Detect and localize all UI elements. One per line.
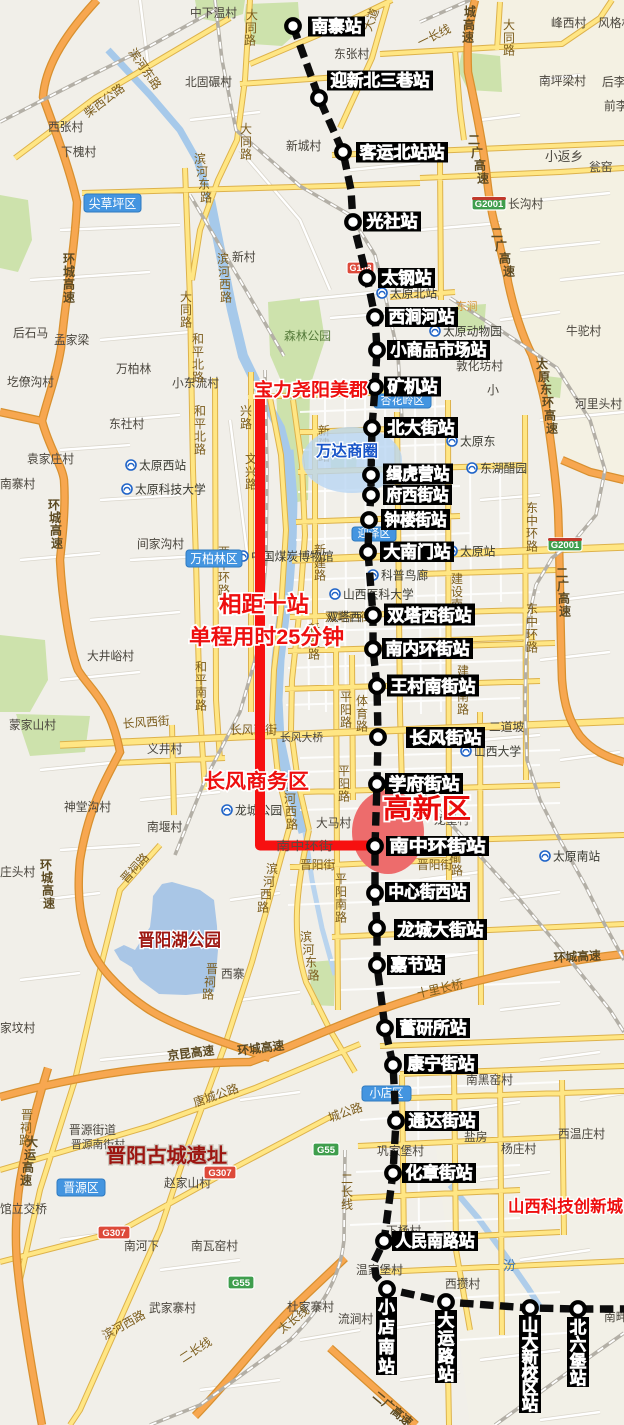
svg-text:杨庄村: 杨庄村 [501, 1141, 536, 1156]
svg-text:太钢站: 太钢站 [382, 268, 433, 288]
svg-text:环: 环 [526, 527, 538, 541]
svg-text:东社村: 东社村 [109, 416, 144, 431]
svg-text:路: 路 [220, 290, 232, 305]
svg-text:前李村: 前李村 [604, 98, 624, 113]
svg-text:小: 小 [487, 383, 499, 397]
svg-text:神堂沟村: 神堂沟村 [64, 800, 111, 814]
svg-text:站: 站 [522, 1394, 539, 1414]
svg-text:康宁街站: 康宁街站 [408, 1054, 476, 1074]
svg-text:运: 运 [438, 1329, 455, 1348]
svg-text:阳: 阳 [340, 703, 352, 717]
svg-text:河: 河 [263, 875, 275, 889]
svg-text:小商品市场站: 小商品市场站 [391, 340, 487, 360]
svg-text:南堰村: 南堰村 [147, 819, 182, 834]
svg-text:路: 路 [308, 968, 320, 983]
svg-text:圪僚沟村: 圪僚沟村 [7, 374, 54, 389]
svg-text:速: 速 [477, 171, 489, 186]
svg-text:太原南站: 太原南站 [553, 849, 600, 864]
svg-text:G307: G307 [102, 1228, 125, 1239]
svg-text:和: 和 [194, 404, 206, 418]
svg-text:中下温村: 中下温村 [190, 5, 237, 20]
svg-text:晋阳街: 晋阳街 [300, 858, 335, 872]
svg-text:西涧河站: 西涧河站 [389, 307, 456, 327]
svg-text:长风大桥: 长风大桥 [280, 730, 323, 744]
svg-text:嘉节站: 嘉节站 [391, 955, 443, 975]
svg-text:武家寨村: 武家寨村 [149, 1300, 196, 1315]
svg-text:同: 同 [180, 303, 192, 317]
svg-text:北: 北 [570, 1318, 587, 1337]
svg-text:高: 高 [463, 17, 475, 32]
svg-text:路: 路 [195, 698, 207, 713]
svg-text:南中环街站: 南中环街站 [390, 836, 487, 856]
svg-text:后石马: 后石马 [13, 326, 48, 340]
svg-text:城: 城 [49, 510, 61, 525]
svg-text:南: 南 [378, 1336, 395, 1356]
svg-text:蓄研所站: 蓄研所站 [400, 1018, 468, 1038]
svg-text:东: 东 [305, 956, 317, 970]
svg-text:堡: 堡 [570, 1351, 587, 1371]
svg-text:高: 高 [558, 591, 570, 606]
svg-text:G2001: G2001 [551, 540, 580, 551]
svg-text:速: 速 [51, 536, 63, 551]
svg-text:路: 路 [338, 789, 350, 804]
svg-text:家坟村: 家坟村 [0, 1020, 35, 1035]
svg-text:大: 大 [246, 8, 258, 22]
svg-text:河里头村: 河里头村 [575, 397, 622, 411]
svg-text:路: 路 [340, 715, 352, 730]
svg-text:路: 路 [244, 33, 256, 48]
svg-text:大: 大 [26, 1134, 38, 1149]
svg-text:大: 大 [240, 122, 252, 136]
svg-text:G55: G55 [317, 1145, 336, 1156]
svg-text:速: 速 [503, 264, 515, 279]
svg-text:阳: 阳 [335, 885, 347, 899]
svg-text:晋阳街: 晋阳街 [417, 858, 452, 872]
svg-text:光社站: 光社站 [365, 211, 418, 231]
svg-text:站: 站 [438, 1364, 455, 1384]
svg-text:速: 速 [20, 1173, 32, 1188]
svg-text:东: 东 [540, 382, 552, 397]
svg-text:南寨站: 南寨站 [312, 16, 363, 36]
svg-text:晋阳湖公园: 晋阳湖公园 [138, 930, 221, 950]
svg-text:滨: 滨 [194, 151, 206, 166]
svg-text:路: 路 [257, 900, 269, 915]
svg-text:后李村: 后李村 [602, 74, 624, 89]
svg-text:运: 运 [24, 1148, 36, 1162]
svg-text:单程用时25分钟: 单程用时25分钟 [189, 625, 344, 649]
svg-text:高新区: 高新区 [383, 793, 471, 824]
svg-text:路: 路 [526, 640, 538, 655]
svg-text:环: 环 [63, 252, 75, 266]
svg-text:山西科技创新城: 山西科技创新城 [508, 1196, 623, 1216]
svg-text:尖草坪区: 尖草坪区 [89, 197, 137, 211]
svg-text:孟家梁: 孟家梁 [54, 332, 89, 347]
svg-text:森林公园: 森林公园 [284, 328, 331, 343]
svg-text:学府街站: 学府街站 [389, 774, 461, 794]
svg-text:高: 高 [63, 277, 75, 292]
svg-text:宝力尧阳美郡: 宝力尧阳美郡 [254, 379, 368, 400]
svg-text:速: 速 [546, 421, 558, 436]
svg-text:路: 路 [194, 442, 206, 457]
svg-text:平: 平 [338, 764, 350, 778]
svg-text:晋阳古城遗址: 晋阳古城遗址 [106, 1144, 228, 1167]
svg-text:城: 城 [41, 870, 53, 885]
svg-text:路: 路 [457, 702, 469, 717]
svg-text:西寨: 西寨 [221, 966, 245, 981]
svg-text:中: 中 [526, 513, 538, 528]
svg-text:大: 大 [503, 18, 515, 32]
svg-text:风格村: 风格村 [598, 15, 624, 30]
svg-text:G55: G55 [232, 1278, 251, 1289]
svg-text:人民南路站: 人民南路站 [396, 1231, 475, 1251]
svg-text:河: 河 [284, 792, 296, 806]
svg-text:大: 大 [180, 290, 192, 304]
svg-text:平: 平 [194, 417, 206, 431]
svg-text:祠: 祠 [20, 1121, 32, 1135]
svg-text:和: 和 [195, 660, 207, 674]
svg-text:广: 广 [471, 145, 483, 160]
svg-text:高: 高 [544, 408, 556, 423]
svg-text:滨: 滨 [266, 861, 278, 876]
svg-text:速: 速 [559, 604, 571, 619]
svg-text:万柏林区: 万柏林区 [190, 551, 238, 566]
svg-text:高: 高 [474, 158, 486, 173]
svg-text:二: 二 [491, 226, 503, 240]
svg-text:南寨村: 南寨村 [0, 476, 35, 491]
svg-text:太: 太 [536, 356, 549, 371]
svg-text:西攒村: 西攒村 [445, 1277, 480, 1291]
svg-text:大井峪村: 大井峪村 [87, 649, 134, 663]
svg-text:小: 小 [378, 1298, 395, 1317]
svg-text:西张村: 西张村 [48, 120, 83, 134]
svg-text:路: 路 [314, 568, 326, 583]
svg-text:路: 路 [438, 1346, 455, 1366]
svg-text:巩家堡村: 巩家堡村 [377, 1143, 424, 1158]
svg-text:建: 建 [451, 572, 463, 586]
svg-text:南坪梁村: 南坪梁村 [539, 73, 586, 88]
svg-text:六: 六 [570, 1334, 587, 1354]
svg-text:太原西站: 太原西站 [139, 458, 186, 473]
svg-text:客运北站站: 客运北站站 [358, 142, 445, 162]
svg-text:下槐村: 下槐村 [61, 144, 96, 159]
svg-text:科普鸟廊: 科普鸟廊 [381, 568, 428, 583]
svg-text:二: 二 [468, 133, 480, 147]
svg-text:盐房: 盐房 [464, 1129, 488, 1144]
svg-text:城: 城 [63, 264, 75, 279]
svg-text:南: 南 [195, 685, 207, 700]
svg-text:兴: 兴 [240, 404, 252, 418]
svg-text:南黑窑村: 南黑窑村 [466, 1072, 513, 1087]
svg-text:龙城大街站: 龙城大街站 [396, 920, 484, 940]
svg-text:蒙家山村: 蒙家山村 [9, 717, 56, 732]
svg-text:南中环街: 南中环街 [276, 838, 333, 853]
svg-text:平: 平 [192, 345, 204, 359]
svg-text:环: 环 [218, 571, 230, 585]
svg-text:城: 城 [464, 4, 476, 19]
svg-text:袁家庄村: 袁家庄村 [27, 451, 74, 466]
svg-text:长风西街: 长风西街 [230, 723, 277, 737]
svg-text:平: 平 [340, 690, 352, 704]
svg-text:路: 路 [451, 863, 463, 878]
svg-text:东张村: 东张村 [334, 47, 369, 61]
svg-text:大马村: 大马村 [316, 816, 351, 830]
svg-text:路: 路 [180, 315, 192, 330]
svg-text:平: 平 [335, 872, 347, 886]
svg-text:路: 路 [192, 370, 204, 385]
svg-text:原: 原 [538, 370, 550, 384]
svg-text:矿机站: 矿机站 [388, 376, 439, 396]
svg-text:北: 北 [194, 430, 206, 444]
svg-text:长风街站: 长风街站 [410, 728, 483, 748]
svg-text:府西街站: 府西街站 [387, 485, 449, 505]
svg-text:西温庄村: 西温庄村 [558, 1126, 605, 1141]
svg-text:高: 高 [22, 1160, 34, 1175]
svg-text:南内环街站: 南内环街站 [386, 639, 471, 659]
svg-text:中心街西站: 中心街西站 [389, 882, 467, 902]
svg-text:高: 高 [499, 251, 511, 266]
svg-text:晋: 晋 [206, 962, 218, 976]
svg-text:环: 环 [526, 628, 538, 642]
svg-text:速: 速 [43, 896, 55, 911]
svg-text:东: 东 [198, 178, 210, 192]
svg-text:相距十站: 相距十站 [219, 592, 309, 617]
svg-text:化章街站: 化章街站 [406, 1163, 474, 1183]
svg-text:新城村: 新城村 [286, 138, 321, 153]
svg-text:双塔西: 双塔西 [327, 610, 362, 624]
svg-text:和: 和 [192, 332, 204, 346]
svg-text:路: 路 [240, 147, 252, 162]
svg-text:河: 河 [196, 165, 208, 179]
svg-text:间家沟村: 间家沟村 [137, 536, 184, 551]
svg-text:中: 中 [526, 614, 538, 629]
svg-text:速: 速 [462, 30, 474, 45]
svg-text:路: 路 [335, 910, 347, 925]
svg-text:二道坡: 二道坡 [489, 720, 524, 734]
svg-text:线: 线 [341, 1198, 353, 1212]
svg-text:东: 东 [526, 602, 538, 616]
svg-text:东: 东 [526, 501, 538, 515]
svg-text:祠: 祠 [204, 975, 216, 989]
svg-text:平: 平 [195, 673, 207, 687]
svg-text:北固碾村: 北固碾村 [185, 75, 232, 89]
svg-text:阳: 阳 [338, 777, 350, 791]
svg-text:大: 大 [438, 1310, 455, 1330]
svg-text:广: 广 [557, 578, 569, 593]
svg-text:育: 育 [356, 706, 368, 721]
svg-text:路: 路 [240, 416, 252, 431]
svg-text:路: 路 [286, 817, 298, 832]
svg-text:南: 南 [335, 897, 347, 912]
svg-text:晋源区: 晋源区 [63, 1181, 99, 1195]
svg-text:庄头村: 庄头村 [0, 864, 35, 879]
svg-text:北大街站: 北大街站 [388, 418, 456, 438]
svg-text:河: 河 [218, 265, 230, 279]
svg-text:站: 站 [570, 1368, 587, 1388]
svg-text:东涧: 东涧 [456, 300, 478, 313]
svg-text:滨: 滨 [300, 929, 312, 944]
svg-text:迎新北三巷站: 迎新北三巷站 [331, 70, 431, 90]
svg-text:瓮窑: 瓮窑 [589, 159, 613, 174]
svg-text:体: 体 [356, 694, 368, 708]
svg-text:太原站: 太原站 [460, 544, 495, 559]
svg-text:晋: 晋 [21, 1108, 33, 1122]
svg-text:通达街站: 通达街站 [409, 1111, 477, 1131]
svg-text:山西医科大学: 山西医科大学 [343, 587, 414, 602]
svg-text:晋源街道: 晋源街道 [69, 1123, 116, 1137]
svg-text:河: 河 [303, 943, 315, 957]
svg-text:环: 环 [48, 498, 60, 512]
svg-text:义井村: 义井村 [147, 742, 182, 756]
svg-text:路: 路 [202, 987, 214, 1002]
svg-text:太原科技大学: 太原科技大学 [135, 482, 206, 497]
svg-text:小店区: 小店区 [369, 1086, 403, 1100]
svg-text:速: 速 [63, 290, 75, 305]
svg-text:同: 同 [240, 135, 252, 149]
svg-text:店: 店 [378, 1318, 395, 1337]
svg-text:西: 西 [285, 805, 297, 819]
svg-text:南瓦窑村: 南瓦窑村 [191, 1238, 238, 1253]
svg-text:峰西村: 峰西村 [551, 16, 586, 30]
svg-text:站: 站 [378, 1356, 395, 1376]
svg-text:二: 二 [341, 1172, 353, 1186]
svg-text:路: 路 [526, 539, 538, 554]
svg-text:路: 路 [200, 190, 212, 205]
svg-text:牛驼村: 牛驼村 [566, 323, 601, 338]
svg-text:钟楼街站: 钟楼街站 [385, 510, 447, 530]
svg-text:长风商务区: 长风商务区 [204, 769, 309, 793]
svg-text:万达商圈: 万达商圈 [315, 441, 378, 460]
svg-text:东湖醋园: 东湖醋园 [480, 461, 527, 476]
svg-text:同: 同 [503, 31, 515, 45]
svg-text:南河下: 南河下 [124, 1238, 159, 1253]
svg-text:广: 广 [495, 238, 507, 253]
svg-text:环城高速: 环城高速 [553, 948, 601, 965]
svg-text:高: 高 [42, 883, 54, 898]
svg-text:路: 路 [503, 43, 515, 58]
svg-text:敦化坊村: 敦化坊村 [456, 358, 503, 373]
svg-text:汾: 汾 [503, 1258, 516, 1273]
svg-text:西: 西 [260, 888, 272, 902]
svg-text:王村南街站: 王村南街站 [391, 676, 477, 696]
svg-text:馆立交桥: 馆立交桥 [0, 1201, 47, 1216]
svg-text:流涧村: 流涧村 [338, 1312, 373, 1326]
svg-text:滨: 滨 [217, 251, 229, 266]
svg-text:小返乡: 小返乡 [545, 149, 583, 164]
svg-text:高: 高 [50, 523, 62, 538]
svg-text:同: 同 [245, 21, 257, 35]
svg-text:双塔西街站: 双塔西街站 [388, 605, 473, 625]
svg-text:环: 环 [40, 858, 52, 872]
svg-text:大南门站: 大南门站 [384, 542, 452, 562]
svg-text:二: 二 [556, 566, 568, 580]
svg-text:北: 北 [192, 358, 204, 372]
svg-text:设: 设 [451, 585, 463, 599]
svg-text:G2001: G2001 [475, 199, 504, 210]
svg-text:路: 路 [356, 719, 368, 734]
svg-text:西: 西 [219, 278, 231, 292]
svg-text:长: 长 [341, 1185, 353, 1199]
svg-text:G307: G307 [208, 1168, 231, 1179]
svg-text:长沟村: 长沟村 [508, 197, 543, 211]
svg-text:太原东: 太原东 [460, 434, 495, 449]
svg-text:环: 环 [542, 396, 554, 410]
svg-text:缉虎营站: 缉虎营站 [387, 464, 450, 484]
svg-text:万柏林: 万柏林 [116, 361, 151, 376]
svg-text:新村: 新村 [232, 249, 256, 264]
